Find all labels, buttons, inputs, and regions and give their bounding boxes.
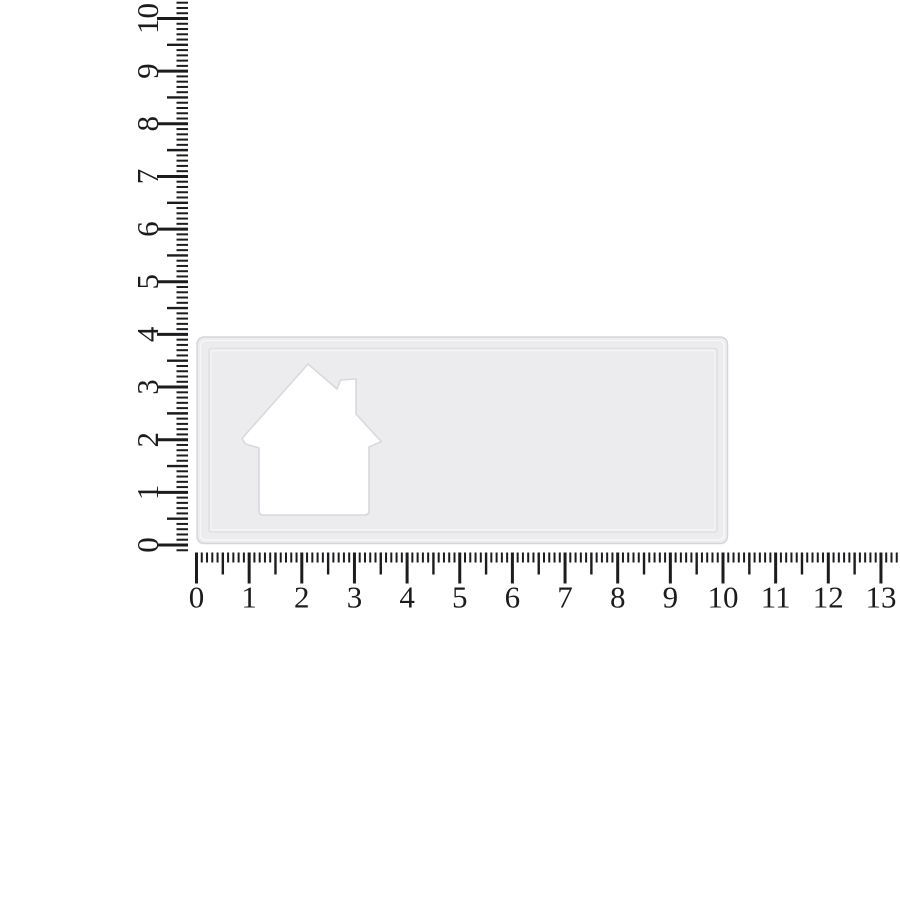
ruler-label: 3	[347, 580, 363, 615]
ruler-label: 5	[452, 580, 468, 615]
ruler-label: 0	[189, 580, 205, 615]
measurement-scene: 012345678910 012345678910111213	[0, 0, 900, 900]
ruler-label: 12	[813, 580, 844, 615]
ruler-label: 1	[130, 485, 165, 501]
ruler-label: 4	[130, 326, 165, 342]
ruler-label: 9	[663, 580, 679, 615]
ruler-label: 2	[294, 580, 310, 615]
ruler-label: 13	[865, 580, 896, 615]
ruler-label: 7	[130, 169, 165, 185]
ruler-label: 10	[130, 3, 165, 34]
ruler-label: 5	[130, 274, 165, 290]
ruler-label: 0	[130, 537, 165, 553]
ruler-label: 6	[130, 221, 165, 237]
ruler-label: 6	[505, 580, 521, 615]
horizontal-ruler: 012345678910111213	[189, 553, 897, 615]
ruler-label: 1	[241, 580, 257, 615]
ruler-label: 10	[708, 580, 739, 615]
vertical-ruler: 012345678910	[130, 3, 188, 553]
measured-card	[197, 337, 728, 544]
ruler-label: 8	[610, 580, 626, 615]
ruler-label: 2	[130, 432, 165, 448]
ruler-label: 11	[761, 580, 791, 615]
ruler-label: 7	[557, 580, 573, 615]
ruler-label: 3	[130, 379, 165, 395]
ruler-label: 8	[130, 116, 165, 132]
scene-canvas: 012345678910 012345678910111213	[0, 0, 900, 900]
ruler-label: 9	[130, 63, 165, 79]
ruler-label: 4	[399, 580, 415, 615]
